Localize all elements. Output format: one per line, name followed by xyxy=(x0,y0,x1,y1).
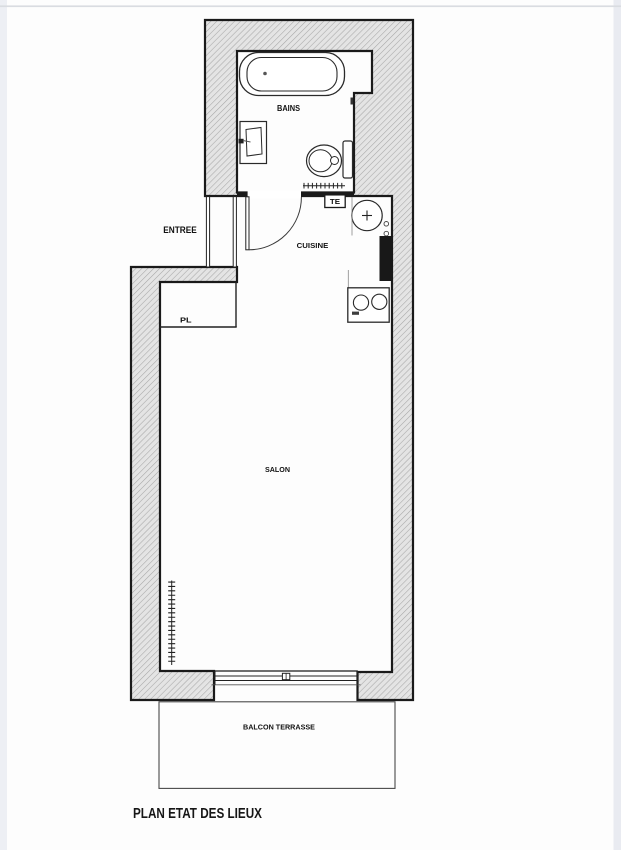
photo-edge-top xyxy=(0,5,621,7)
wall-top-and-right xyxy=(205,20,413,700)
door-opening xyxy=(248,191,301,199)
kitchen-door xyxy=(246,197,302,250)
wall-step-mark xyxy=(351,98,354,105)
label-bains: BAINS xyxy=(277,104,300,113)
wall-left-and-bottom xyxy=(131,267,237,700)
label-cuisine: CUISINE xyxy=(297,241,329,250)
toilet-tank xyxy=(343,141,353,178)
door-leaf xyxy=(246,197,249,250)
entry-wall-left xyxy=(206,197,209,267)
bathtub-drain xyxy=(263,72,267,76)
faucet-knob-2 xyxy=(384,231,389,236)
page-title: PLAN ETAT DES LIEUX xyxy=(133,806,262,822)
entry-wall-right xyxy=(233,197,236,267)
washbasin-faucet xyxy=(239,139,244,144)
label-pl: PL xyxy=(180,316,192,325)
bathtub xyxy=(240,53,345,96)
toilet xyxy=(307,141,353,178)
label-salon: SALON xyxy=(265,465,290,474)
floor-plan-drawing: BAINS ENTREE CUISINE PL SALON BALCON TER… xyxy=(0,0,621,850)
stove-controls-mark xyxy=(352,312,359,315)
washbasin-counter xyxy=(240,122,267,164)
closet-partition xyxy=(160,282,237,327)
floor-plan-page: BAINS ENTREE CUISINE PL SALON BALCON TER… xyxy=(0,0,621,850)
photo-edge-left xyxy=(0,0,7,850)
balcony-outline xyxy=(159,702,395,789)
label-te: TE xyxy=(330,197,340,206)
kitchen-sink xyxy=(352,200,382,230)
stove xyxy=(348,288,389,322)
photo-edge-right xyxy=(614,0,621,850)
bay-window xyxy=(212,671,361,685)
label-balcon: BALCON TERRASSE xyxy=(243,723,315,732)
duct-protrusion xyxy=(380,236,394,281)
washbasin xyxy=(239,122,267,164)
door-swing-arc xyxy=(249,197,301,250)
label-entree: ENTREE xyxy=(163,225,197,235)
faucet-knob-1 xyxy=(384,222,389,227)
toilet-flush xyxy=(331,157,339,165)
